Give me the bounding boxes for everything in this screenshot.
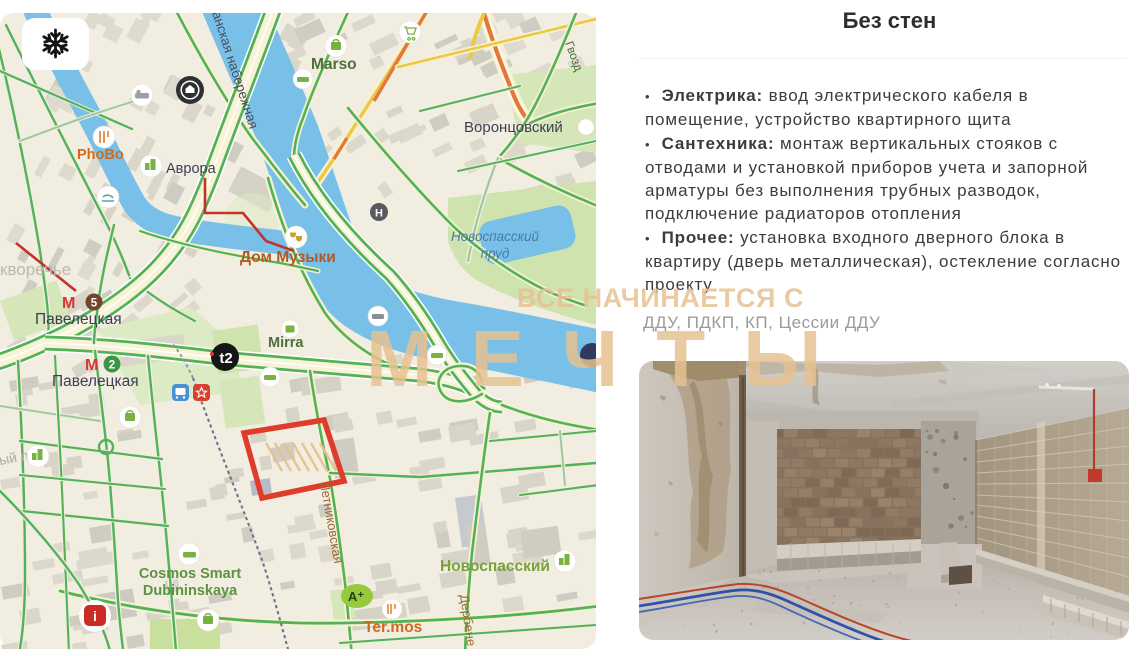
svg-text:Dubininskaya: Dubininskaya bbox=[143, 583, 238, 599]
svg-text:М: М bbox=[62, 295, 75, 312]
svg-text:Воронцовский: Воронцовский bbox=[464, 119, 563, 136]
svg-text:2: 2 bbox=[109, 360, 115, 372]
svg-text:Павелецкая: Павелецкая bbox=[35, 311, 122, 328]
svg-text:i: i bbox=[93, 608, 97, 624]
svg-text:А⁺: А⁺ bbox=[348, 589, 364, 604]
svg-text:М: М bbox=[85, 357, 98, 374]
svg-text:t2: t2 bbox=[219, 350, 232, 367]
svg-text:Новоспасский: Новоспасский bbox=[451, 229, 540, 244]
svg-text:Новоспасский: Новоспасский bbox=[440, 558, 550, 575]
svg-text:Marso: Marso bbox=[311, 56, 357, 73]
svg-text:Павелецкая: Павелецкая bbox=[52, 373, 139, 390]
svg-text:5: 5 bbox=[91, 298, 98, 310]
svg-text:кворечье: кворечье bbox=[0, 260, 71, 279]
svg-text:Аврора: Аврора bbox=[166, 161, 217, 177]
svg-text:Mirra: Mirra bbox=[268, 335, 304, 351]
svg-text:пруд: пруд bbox=[481, 246, 510, 261]
svg-text:Ter.mos: Ter.mos bbox=[364, 619, 422, 636]
svg-text:PhoBo: PhoBo bbox=[77, 147, 124, 163]
svg-text:Н: Н bbox=[375, 208, 383, 220]
svg-text:Cosmos Smart: Cosmos Smart bbox=[139, 566, 242, 582]
svg-text:Дом Музыки: Дом Музыки bbox=[240, 249, 336, 266]
